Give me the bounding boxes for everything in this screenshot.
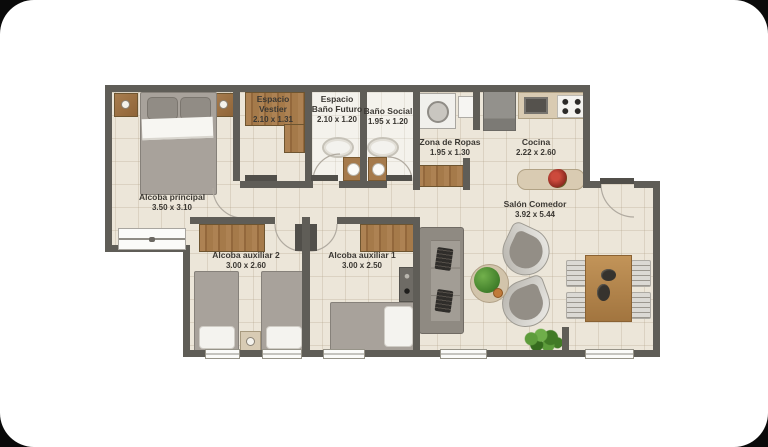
plant-icon (522, 328, 564, 352)
dining-chair (566, 260, 586, 287)
pillow (266, 326, 302, 349)
room-name: Baño Social (359, 106, 417, 116)
room-label-cocina: Cocina 2.22 x 2.60 (497, 137, 575, 158)
single-bed (261, 271, 306, 352)
kitchen-sink (524, 97, 548, 114)
dining-chair (631, 292, 651, 319)
wall-segment (105, 85, 112, 252)
room-dims: 1.95 x 1.30 (411, 148, 489, 158)
closet (199, 224, 265, 252)
room-name: Salón Comedor (484, 199, 586, 209)
vestier-closet (284, 124, 305, 153)
room-dims: 3.00 x 2.50 (312, 261, 412, 271)
room-label-alcoba-auxiliar-2: Alcoba auxiliar 2 3.00 x 2.60 (196, 250, 296, 271)
refrigerator (483, 91, 516, 131)
room-label-zona-de-ropas: Zona de Ropas 1.95 x 1.30 (411, 137, 489, 158)
washer-drum (427, 101, 449, 123)
room-label-salon-comedor: Salón Comedor 3.92 x 5.44 (484, 199, 586, 220)
room-dims: 2.22 x 2.60 (497, 148, 575, 158)
kitchen-counter (518, 92, 586, 119)
armchair-seat (504, 282, 547, 325)
flower-pot (548, 169, 567, 188)
wall-segment (473, 85, 480, 130)
armchair-seat (504, 229, 548, 274)
nightstand (240, 331, 261, 351)
wall-segment (583, 181, 601, 188)
floor-plan-card: Alcoba principal 3.50 x 3.10 Espacio Ves… (0, 0, 768, 447)
wall-segment (337, 217, 420, 224)
single-bed (330, 302, 416, 351)
pillow (384, 306, 413, 347)
knob (149, 237, 155, 242)
bed-sheet (142, 117, 214, 140)
lamp-icon (246, 337, 255, 346)
door-leaf (386, 175, 412, 181)
lamp-icon (219, 100, 228, 109)
single-bed (194, 271, 239, 352)
wall-segment (562, 327, 569, 350)
wall-segment (183, 245, 190, 357)
nightstand (114, 93, 138, 117)
sofa-pillow (435, 247, 454, 271)
window (440, 349, 487, 359)
bowl (601, 269, 616, 281)
room-dims: 3.00 x 2.60 (196, 261, 296, 271)
room-dims: 3.92 x 5.44 (484, 210, 586, 220)
door-leaf (295, 224, 302, 251)
decor-item (493, 288, 503, 298)
window (323, 349, 365, 359)
wall-segment (583, 85, 590, 181)
room-label-espacio-vestier: Espacio Vestier 2.10 x 1.31 (244, 94, 302, 125)
bowl (597, 284, 610, 301)
toilet (367, 137, 399, 158)
room-name: Zona de Ropas (411, 137, 489, 147)
lamp-icon (121, 100, 130, 109)
room-label-bano-social: Baño Social 1.95 x 1.20 (359, 106, 417, 127)
basin-bowl (347, 163, 360, 176)
door-leaf (310, 224, 317, 251)
wall-segment (302, 217, 310, 350)
room-dims: 3.50 x 3.10 (112, 203, 232, 213)
room-name: Cocina (497, 137, 575, 147)
bedroom-window-dresser (118, 228, 186, 250)
washing-machine (419, 93, 456, 129)
wall-segment (105, 85, 590, 92)
room-name: Alcoba auxiliar 2 (196, 250, 296, 260)
wall-segment (233, 85, 240, 181)
wall-segment (653, 181, 660, 357)
room-name: Espacio Baño Futuro (309, 94, 365, 114)
basin-bowl (372, 163, 385, 176)
wall-segment (634, 181, 660, 188)
coffee-table (470, 264, 509, 303)
sofa-pillow (435, 289, 454, 313)
closet (360, 224, 415, 252)
wall-segment (413, 217, 420, 350)
room-label-alcoba-principal: Alcoba principal 3.50 x 3.10 (112, 192, 232, 213)
room-name: Alcoba auxiliar 1 (312, 250, 412, 260)
room-dims: 1.95 x 1.20 (359, 117, 417, 127)
toilet (322, 137, 354, 158)
room-label-alcoba-auxiliar-1: Alcoba auxiliar 1 3.00 x 2.50 (312, 250, 412, 271)
pillow (199, 326, 235, 349)
wall-segment (240, 181, 313, 188)
entry-door-leaf (600, 178, 634, 184)
room-name: Espacio Vestier (244, 94, 302, 114)
stove (557, 95, 586, 118)
dining-chair (566, 292, 586, 319)
window (262, 349, 302, 359)
dining-chair (631, 260, 651, 287)
window (585, 349, 634, 359)
double-bed (140, 92, 217, 195)
laundry-counter (417, 165, 465, 187)
dining-table (585, 255, 632, 322)
room-label-espacio-bano-futuro: Espacio Baño Futuro 2.10 x 1.20 (309, 94, 365, 125)
wall-segment (463, 158, 470, 190)
sofa (419, 227, 464, 334)
room-name: Alcoba principal (112, 192, 232, 202)
door-leaf (245, 175, 277, 181)
washbasin (368, 157, 387, 181)
window (205, 349, 240, 359)
room-dims: 2.10 x 1.20 (309, 115, 365, 125)
pillow (147, 97, 178, 120)
room-dims: 2.10 x 1.31 (244, 115, 302, 125)
door-leaf (311, 175, 338, 181)
wall-segment (190, 217, 275, 224)
